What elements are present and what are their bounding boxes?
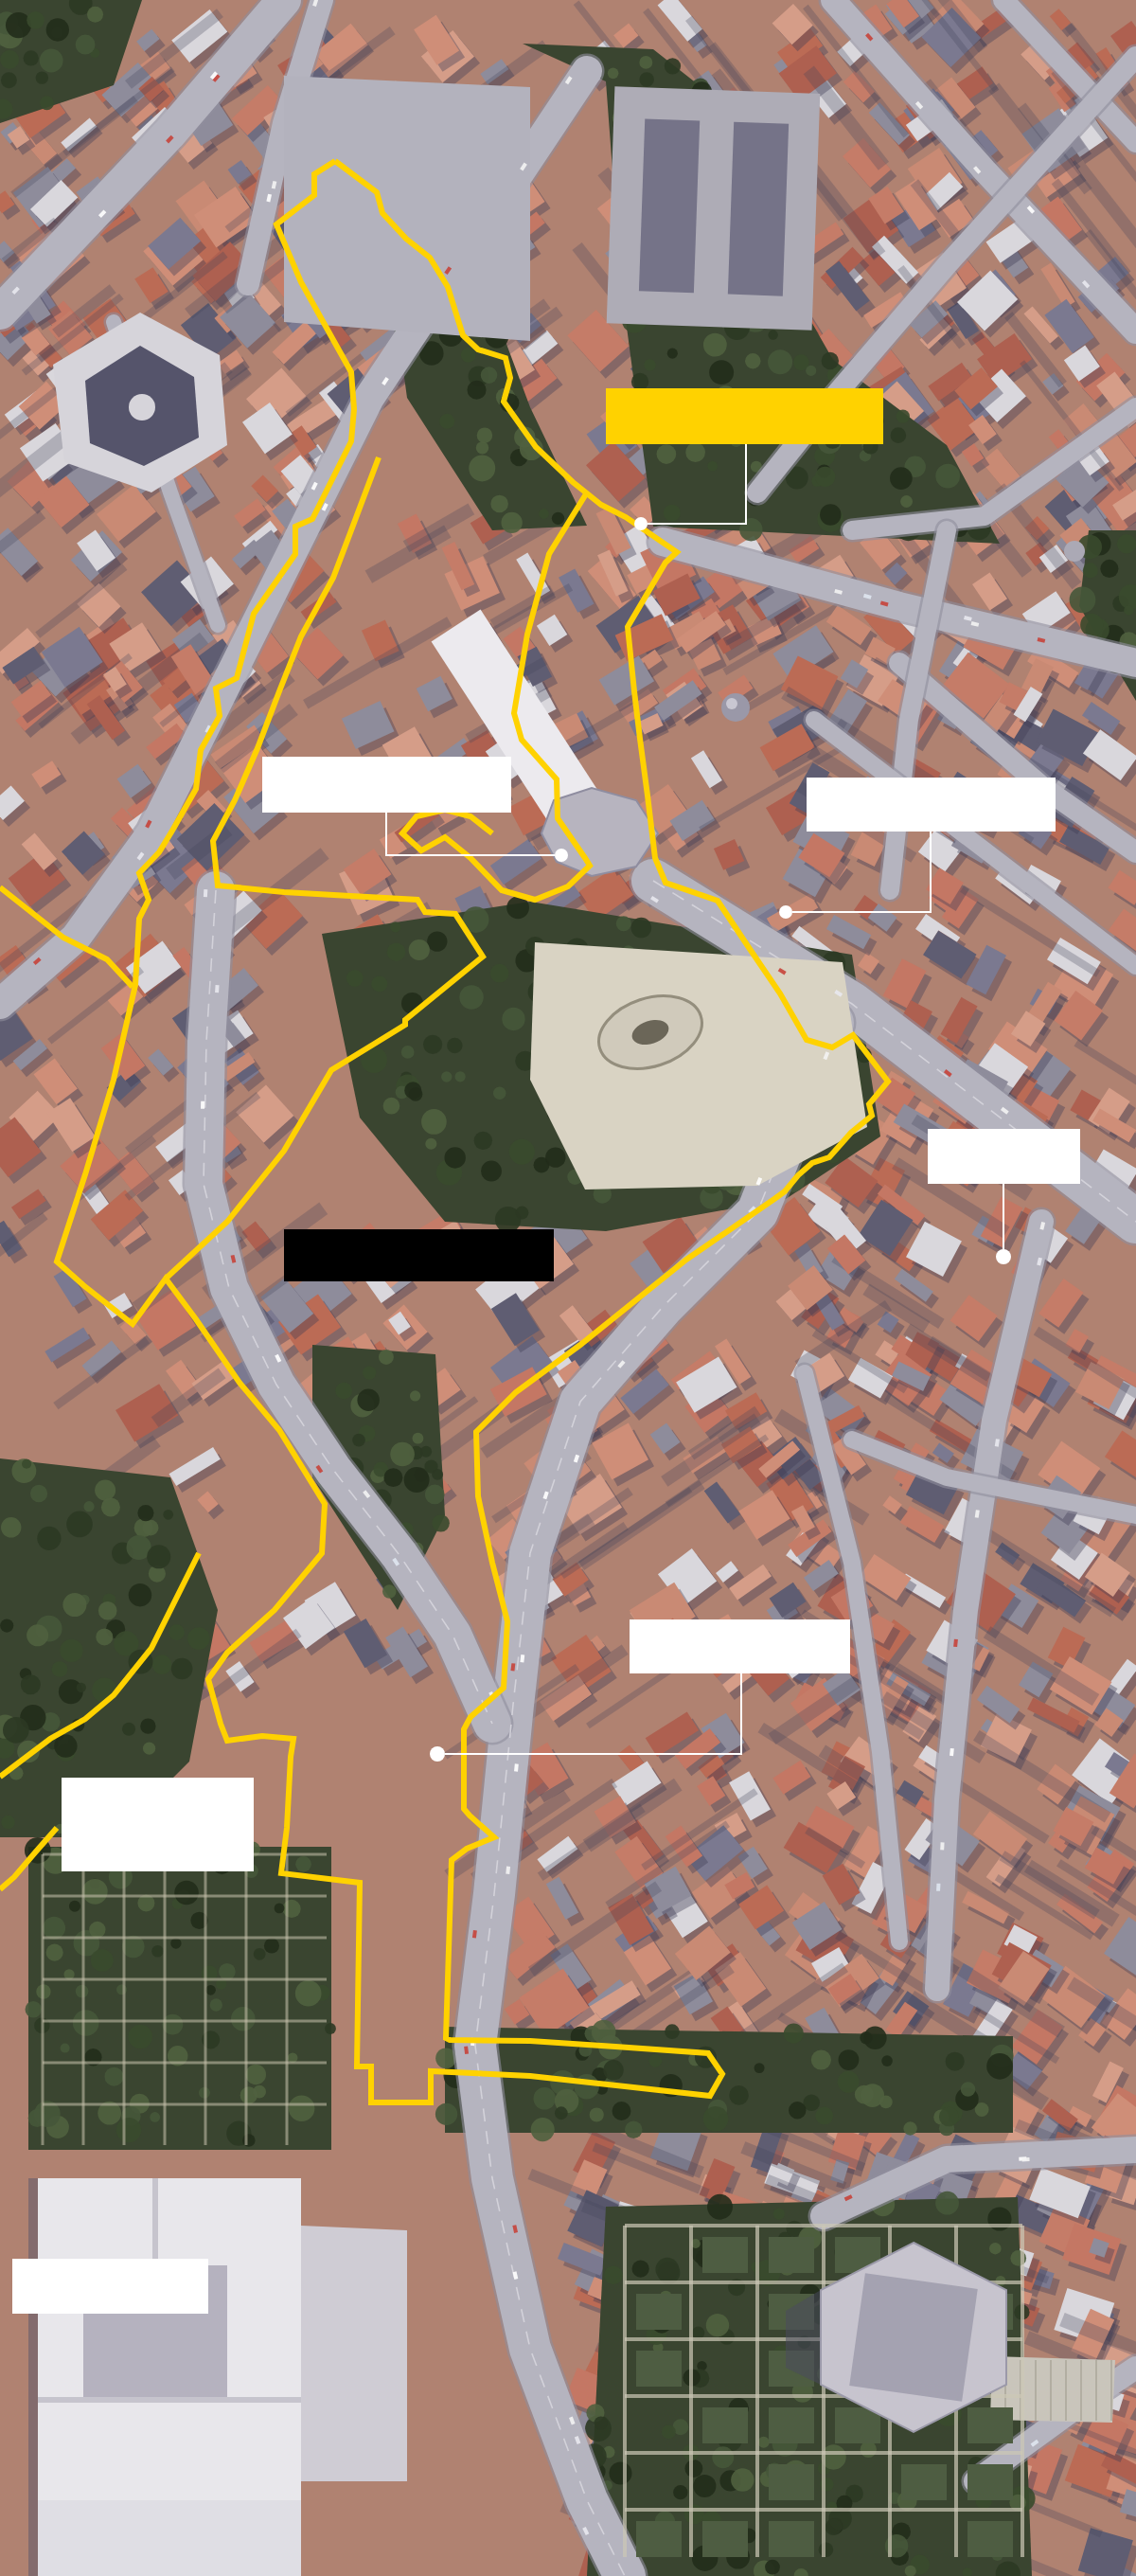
callout-yellow-dot [634,517,648,530]
map-canvas [0,0,1136,2576]
annotated-aerial-map [0,0,1136,2576]
callout-white-1 [262,757,511,813]
callout-white-4-dot [430,1746,445,1762]
callout-white-1-dot [555,849,568,862]
callout-white-5 [62,1778,254,1871]
callout-white-2-dot [779,905,792,919]
callout-black [284,1229,554,1281]
callout-yellow [606,388,883,444]
callout-white-3-dot [996,1249,1011,1264]
callout-white-2 [807,778,1056,832]
callout-white-6 [12,2259,208,2314]
callout-white-3 [928,1129,1080,1184]
callout-white-4 [630,1619,850,1673]
